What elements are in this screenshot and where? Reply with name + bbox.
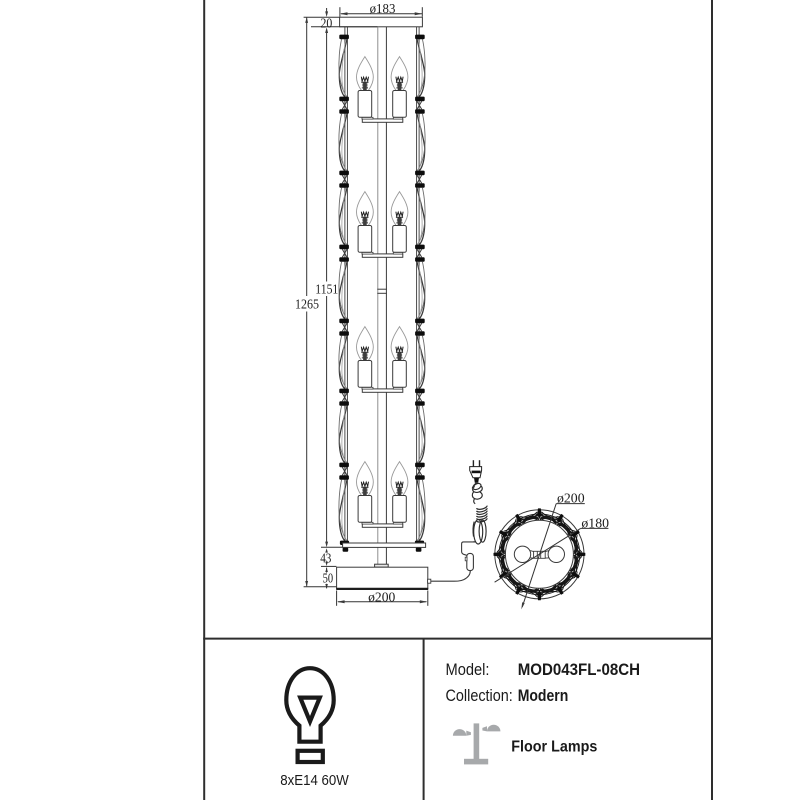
- svg-text:ø183: ø183: [370, 1, 396, 16]
- svg-text:1151: 1151: [315, 281, 338, 296]
- svg-text:Floor Lamps: Floor Lamps: [511, 739, 597, 756]
- svg-text:8xE14 60W: 8xE14 60W: [280, 772, 349, 789]
- svg-text:50: 50: [323, 571, 334, 586]
- svg-text:1265: 1265: [295, 297, 319, 312]
- svg-text:Modern: Modern: [518, 686, 569, 705]
- svg-text:MOD043FL-08CH: MOD043FL-08CH: [518, 660, 640, 679]
- svg-text:Model:: Model:: [446, 660, 490, 679]
- svg-text:Collection:: Collection:: [446, 686, 513, 705]
- svg-text:43: 43: [320, 550, 331, 565]
- svg-text:ø200: ø200: [557, 491, 585, 506]
- svg-text:ø180: ø180: [581, 515, 609, 530]
- svg-text:ø200: ø200: [368, 589, 395, 604]
